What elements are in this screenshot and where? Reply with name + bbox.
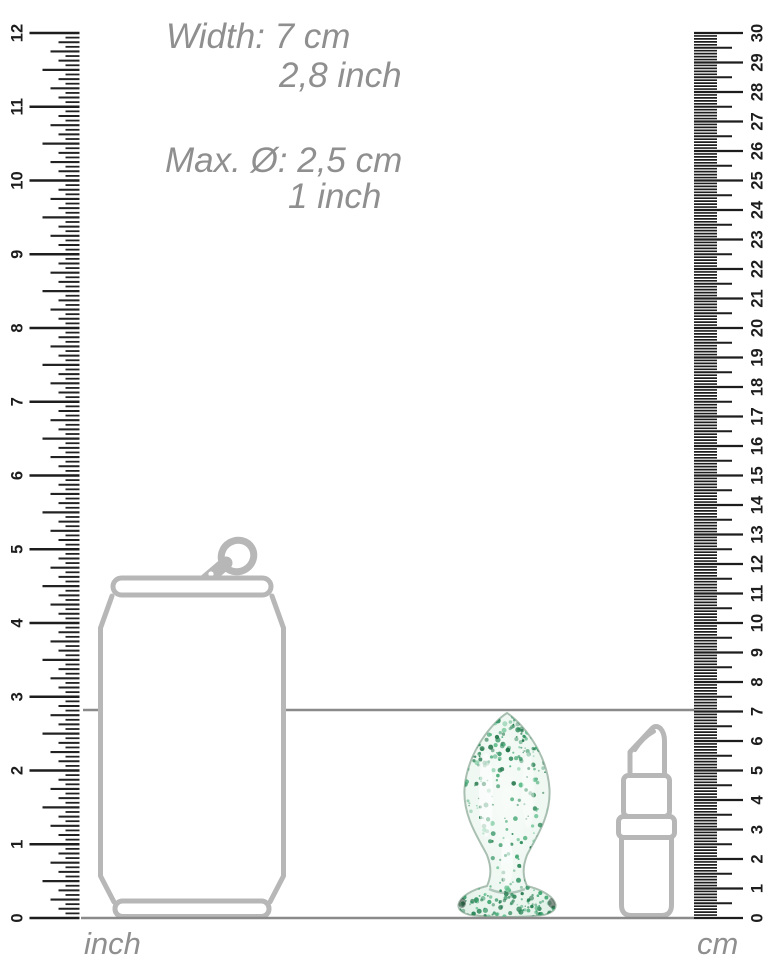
cm-number: 27 [749, 112, 767, 130]
glitter-dot [510, 901, 514, 905]
inch-number: 4 [9, 618, 27, 628]
glitter-dot [464, 767, 467, 770]
glitter-dot [455, 832, 459, 836]
glitter-dot [489, 714, 492, 717]
inch-number: 3 [9, 692, 27, 701]
glitter-dot [530, 730, 533, 733]
glitter-dot [513, 713, 517, 717]
glitter-dot [544, 771, 546, 773]
glitter-dot [532, 751, 534, 753]
glitter-dot [554, 779, 558, 783]
cm-number: 6 [749, 736, 767, 745]
glitter-dot [505, 828, 508, 831]
glitter-dot [503, 899, 506, 902]
inch-number: 5 [9, 545, 27, 554]
lipstick-collar [619, 817, 675, 838]
width-cm-annotation: Width: 7 cm [166, 17, 350, 56]
cm-number: 15 [749, 466, 767, 484]
glitter-dot [520, 841, 523, 844]
glitter-dot [522, 752, 524, 754]
glitter-dot [539, 901, 542, 904]
glitter-dot [513, 816, 518, 821]
glitter-dot [524, 747, 526, 749]
glitter-dot [498, 714, 501, 717]
glitter-dot [502, 721, 507, 726]
glitter-dot [545, 763, 547, 765]
glitter-dot [498, 757, 502, 761]
inch-number: 6 [9, 471, 27, 480]
glitter-dot [528, 902, 530, 904]
glitter-dot [496, 779, 498, 781]
glitter-dot [553, 877, 555, 879]
cm-number: 7 [749, 707, 767, 716]
inch-unit-label: inch [84, 926, 141, 961]
cm-number: 14 [749, 495, 767, 514]
glitter-dot [491, 856, 495, 860]
cm-number: 16 [749, 437, 767, 455]
glitter-dot [460, 765, 463, 768]
glitter-dot [460, 861, 462, 863]
glitter-dot [472, 725, 474, 727]
diameter-inch-annotation: 1 inch [288, 177, 381, 216]
glitter-dot [497, 752, 502, 757]
glitter-dot [550, 880, 554, 884]
glitter-dot [537, 739, 540, 742]
cm-number: 3 [749, 825, 767, 834]
can-top-rim [113, 578, 271, 595]
glitter-dot [461, 820, 463, 822]
cm-number: 19 [749, 348, 767, 366]
glitter-dot [463, 823, 467, 827]
glitter-dot [469, 903, 471, 905]
glitter-dot [537, 718, 542, 723]
glitter-dot [488, 745, 493, 750]
glitter-dot [516, 878, 521, 883]
glitter-dot [528, 867, 533, 872]
glitter-dot [495, 735, 499, 739]
glitter-dot [532, 878, 537, 883]
inch-number: 1 [9, 840, 27, 849]
glitter-dot [550, 890, 553, 893]
glitter-dot [457, 879, 460, 882]
glitter-dot [546, 890, 551, 895]
cm-number: 20 [749, 319, 767, 337]
glitter-dot [472, 714, 474, 716]
glitter-dot [520, 747, 522, 749]
glitter-dot [476, 805, 478, 807]
glitter-dot [545, 826, 547, 828]
glitter-dot [458, 760, 460, 762]
glitter-dot [476, 719, 481, 724]
glitter-dot [533, 873, 538, 878]
glitter-dot [555, 887, 557, 889]
glitter-dot [540, 726, 544, 730]
glitter-dot [464, 831, 466, 833]
glitter-dot [493, 754, 498, 759]
glitter-dot [553, 762, 556, 765]
glitter-dot [457, 715, 460, 718]
glitter-dot [469, 884, 473, 888]
glitter-dot [474, 868, 476, 870]
glitter-dot [478, 752, 481, 755]
glitter-dot [540, 850, 542, 852]
glitter-dot [531, 869, 535, 873]
glitter-dot [530, 727, 534, 731]
glitter-dot [492, 715, 494, 717]
cm-number: 21 [749, 289, 767, 307]
glitter-dot [486, 722, 489, 725]
glitter-dot [523, 836, 527, 840]
inch-number: 9 [9, 250, 27, 259]
glitter-dot [520, 886, 523, 889]
glitter-dot [472, 741, 477, 746]
glitter-dot [476, 907, 479, 910]
glitter-dot [528, 717, 533, 722]
glitter-dot [513, 722, 515, 724]
glitter-dot [523, 750, 525, 752]
inch-ruler: 0123456789101112 [9, 24, 80, 923]
glitter-dot [550, 832, 555, 837]
glitter-dot [508, 896, 511, 899]
inch-number: 11 [9, 98, 27, 115]
glitter-dot [512, 724, 514, 726]
glitter-dot [534, 903, 537, 906]
cm-number: 4 [749, 795, 767, 805]
glitter-dot [531, 871, 536, 876]
glitter-dot [475, 900, 479, 904]
glitter-dot [537, 873, 540, 876]
diameter-cm-annotation: Max. Ø: 2,5 cm [165, 141, 402, 180]
cm-number: 29 [749, 53, 767, 71]
glitter-dot [538, 838, 542, 842]
glitter-dot [475, 736, 478, 739]
glitter-dot [524, 736, 527, 739]
glitter-dot [497, 711, 499, 713]
glitter-dot [546, 731, 548, 733]
glitter-dot [472, 857, 477, 862]
glitter-dot [556, 713, 559, 716]
glitter-dot [499, 901, 501, 903]
glitter-dot [478, 758, 482, 762]
glitter-dot [541, 766, 545, 770]
glitter-dot [480, 746, 485, 751]
glitter-dot [467, 868, 470, 871]
glitter-dot [464, 748, 468, 752]
glitter-dot [542, 900, 545, 903]
glitter-dot [480, 730, 485, 735]
glitter-dot [525, 723, 529, 727]
glitter-dot [491, 840, 493, 842]
glitter-dot [530, 716, 533, 719]
glitter-dot [499, 843, 503, 847]
cm-number: 25 [749, 171, 767, 189]
glitter-dot [462, 772, 464, 774]
glitter-dot [553, 888, 558, 893]
glitter-dot [533, 768, 536, 771]
glitter-dot [516, 712, 521, 717]
glitter-dot [469, 809, 473, 813]
lipstick-inner-tube [624, 776, 670, 817]
glitter-dot [477, 724, 480, 727]
glitter-dot [457, 805, 459, 807]
glitter-dot [457, 866, 462, 871]
glitter-dot [480, 711, 484, 715]
glitter-dot [459, 851, 461, 853]
glitter-dot [489, 733, 492, 736]
glitter-dot [468, 872, 471, 875]
glitter-dot [490, 755, 493, 758]
glitter-dot [494, 743, 498, 747]
glitter-dot [459, 830, 462, 833]
glitter-dot [527, 909, 531, 913]
glitter-dot [537, 894, 540, 897]
glitter-dot [491, 831, 496, 836]
glitter-dot [479, 895, 481, 897]
inch-number: 2 [9, 766, 27, 775]
cm-number: 26 [749, 142, 767, 160]
can-right-wall [270, 596, 284, 902]
glitter-dot [470, 901, 473, 904]
glitter-dot [468, 728, 472, 732]
glitter-dot [508, 911, 512, 915]
glitter-dot [533, 735, 538, 740]
glitter-dot [529, 896, 534, 901]
glitter-dot [531, 824, 534, 827]
glitter-dot [518, 858, 520, 860]
glitter-dot [512, 752, 514, 754]
glitter-dot [533, 889, 535, 891]
glitter-dot [456, 778, 459, 781]
glitter-dot [486, 865, 488, 867]
cm-number: 30 [749, 24, 767, 42]
glitter-dot [532, 880, 534, 882]
glitter-dot [479, 882, 481, 884]
glitter-dot [502, 733, 505, 736]
glitter-dot [521, 892, 524, 895]
glitter-dot [458, 760, 462, 764]
glitter-dot [489, 885, 491, 887]
cm-number: 23 [749, 230, 767, 248]
cm-number: 11 [749, 585, 767, 602]
glitter-dot [499, 882, 501, 884]
glitter-dot [516, 904, 518, 906]
glitter-dot [468, 802, 470, 804]
glitter-dot [536, 883, 538, 885]
glitter-dot [462, 726, 464, 728]
glitter-dot [455, 870, 458, 873]
glitter-dot [466, 886, 468, 888]
glitter-dot [460, 791, 463, 794]
glitter-dot [544, 846, 548, 850]
glitter-dot [465, 746, 469, 750]
glitter-dot [534, 910, 538, 914]
size-guide-diagram: 0123456789101112 01234567891011121314151… [0, 0, 774, 969]
glitter-dot [536, 741, 538, 743]
glitter-dot [456, 803, 457, 804]
glitter-dot [499, 731, 502, 734]
glitter-dot [543, 719, 545, 721]
glitter-dot [556, 868, 558, 870]
glitter-dot [479, 716, 483, 720]
glitter-dot [502, 837, 504, 839]
glitter-dot [514, 756, 518, 760]
glitter-dot [475, 730, 477, 732]
glitter-dot [511, 833, 513, 835]
glitter-dot [491, 716, 494, 719]
glitter-dot [460, 880, 461, 881]
glitter-dot [544, 896, 548, 900]
glitter-dot [469, 830, 472, 833]
glitter-dot [530, 880, 532, 882]
glitter-dot [511, 781, 516, 786]
glitter-dot [541, 880, 543, 882]
size-guide-canvas: 0123456789101112 01234567891011121314151… [0, 0, 774, 969]
glitter-dot [467, 735, 470, 738]
inch-number: 7 [9, 397, 27, 406]
glitter-dot [533, 722, 538, 727]
inch-number: 10 [9, 171, 27, 189]
glitter-dot [518, 746, 520, 748]
glitter-dot [495, 912, 499, 916]
glitter-dot [538, 912, 540, 914]
glitter-dot [481, 720, 483, 722]
glitter-dot [501, 736, 503, 738]
cm-number: 9 [749, 648, 767, 657]
glitter-dot [505, 820, 508, 823]
soda-can-outline [101, 534, 284, 916]
glitter-dot [518, 799, 521, 802]
cm-number: 5 [749, 766, 767, 775]
glitter-dot [551, 890, 553, 892]
cm-number: 22 [749, 260, 767, 278]
glitter-dot [542, 792, 544, 794]
glitter-dot [459, 845, 463, 849]
glitter-dot [520, 733, 522, 735]
glitter-dot [514, 737, 518, 741]
glitter-dot [487, 895, 489, 897]
glitter-dot [535, 906, 540, 911]
lipstick-outline [619, 727, 675, 916]
glitter-dot [504, 817, 506, 819]
glitter-dot [554, 787, 556, 789]
glitter-dot [517, 838, 520, 841]
glitter-dot [480, 898, 483, 901]
glitter-dot [527, 906, 529, 908]
glitter-dot [524, 720, 528, 724]
glitter-dot [475, 760, 480, 765]
can-bottom-rim [115, 901, 269, 917]
glitter-dot [477, 807, 479, 809]
cm-number: 24 [749, 200, 767, 219]
glitter-dot [496, 784, 500, 788]
glitter-dot [538, 770, 540, 772]
glitter-dot [455, 843, 459, 847]
glitter-dot [474, 756, 476, 758]
glitter-dot [456, 750, 460, 754]
cm-number: 10 [749, 614, 767, 632]
glitter-dot [552, 738, 557, 743]
can-left-wall [101, 596, 115, 902]
glitter-dot [509, 765, 511, 767]
glitter-dot [552, 886, 556, 890]
glitter-dot [549, 890, 552, 893]
glitter-dot [502, 728, 507, 733]
glitter-dot [553, 863, 557, 867]
cm-number: 13 [749, 525, 767, 543]
glitter-dot [460, 774, 463, 777]
glitter-glass-plug-product [455, 710, 559, 920]
glitter-dot [467, 799, 470, 802]
glitter-dot [533, 832, 535, 834]
glitter-dot [522, 739, 525, 742]
glitter-dot [520, 729, 523, 732]
glitter-dot [545, 713, 548, 716]
glitter-dot [538, 891, 542, 895]
glitter-dot [457, 827, 459, 829]
glitter-dot [515, 727, 520, 732]
glitter-dot [506, 748, 511, 753]
glitter-dot [518, 909, 523, 914]
glitter-dot [549, 764, 553, 768]
glitter-dot [483, 908, 488, 913]
glitter-dot [532, 903, 534, 905]
glitter-dot [457, 811, 459, 813]
inch-number: 8 [9, 323, 27, 332]
glitter-dot [468, 723, 470, 725]
glitter-dot [491, 913, 493, 915]
glitter-dot [484, 894, 486, 896]
glitter-dot [517, 804, 519, 806]
lipstick-base-tube [622, 838, 672, 916]
glitter-dot [534, 739, 537, 742]
glitter-dot [479, 731, 481, 733]
glitter-dot [534, 856, 536, 858]
glitter-dot [498, 768, 503, 773]
glitter-dot [503, 743, 506, 746]
glitter-dot [525, 905, 526, 906]
cm-number: 1 [749, 884, 767, 893]
glitter-dot [513, 869, 516, 872]
glitter-dot [515, 854, 519, 858]
glitter-dot [497, 774, 499, 776]
glitter-dot [549, 841, 552, 844]
glitter-dot [521, 898, 523, 900]
glitter-dot [509, 720, 513, 724]
glitter-dot [510, 797, 514, 801]
glitter-dot [554, 718, 556, 720]
cm-number: 17 [749, 407, 767, 425]
inch-number: 0 [9, 913, 27, 922]
glitter-dot [509, 756, 514, 761]
glitter-dot [496, 866, 499, 869]
glitter-dot [477, 909, 482, 914]
glitter-dot [489, 895, 492, 898]
cm-number: 0 [749, 913, 767, 922]
glitter-dot [475, 782, 479, 786]
glitter-dot [538, 732, 540, 734]
glitter-dot [517, 767, 521, 771]
glitter-dot [476, 723, 479, 726]
glitter-dot [547, 866, 550, 869]
glitter-dot [542, 882, 546, 886]
glitter-dot [519, 866, 521, 868]
glitter-dot [536, 810, 538, 812]
glitter-dot [468, 805, 470, 807]
cm-number: 28 [749, 83, 767, 101]
glitter-dot [512, 881, 513, 882]
width-inch-annotation: 2,8 inch [278, 56, 402, 95]
glitter-dot [498, 905, 503, 910]
